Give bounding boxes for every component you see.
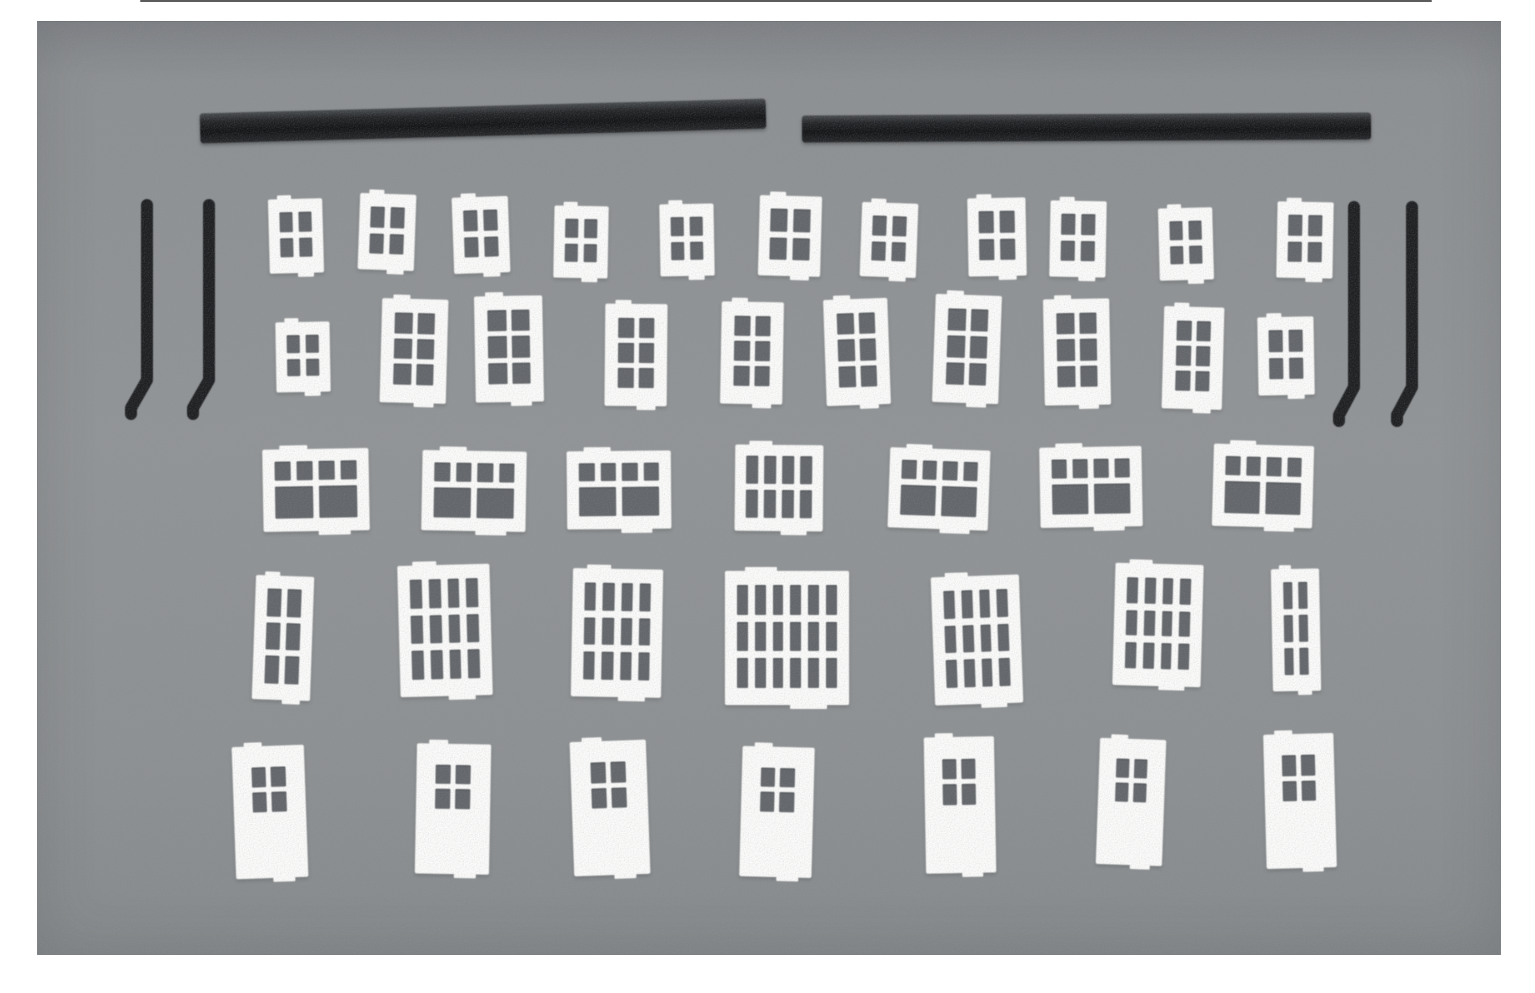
window-panes	[733, 316, 770, 387]
window-pane	[860, 365, 877, 387]
window-pane	[455, 789, 470, 809]
window-pane	[611, 762, 627, 783]
window-pane	[618, 318, 634, 338]
window-pane	[369, 233, 384, 254]
window-pane	[639, 583, 651, 611]
window-pane	[837, 313, 854, 335]
window-pane	[602, 617, 614, 645]
window-pane	[755, 658, 766, 688]
tall6-window-piece	[932, 294, 1002, 404]
window-panes	[1224, 456, 1301, 515]
window-panes	[434, 462, 515, 518]
window-pane	[1170, 246, 1183, 265]
window-pane	[1288, 215, 1302, 236]
door-window-panes	[251, 767, 286, 813]
window-pane	[998, 624, 1010, 652]
window-pane	[838, 339, 855, 361]
window-pane	[963, 659, 975, 687]
window-pane	[584, 582, 596, 610]
window-pane	[746, 456, 758, 484]
window-panes	[279, 212, 312, 258]
window-pane	[447, 579, 459, 608]
downspout-strip	[1397, 207, 1412, 421]
door-window-panes	[590, 762, 627, 809]
window-pane	[483, 209, 498, 230]
tall6-window-piece	[1043, 298, 1111, 405]
window-pane	[251, 767, 266, 787]
tall6-window-piece	[605, 304, 668, 407]
window-pane	[737, 585, 748, 615]
window-pane	[1289, 330, 1303, 352]
window-pane	[429, 615, 441, 644]
window-pane	[779, 792, 794, 812]
window-pane	[770, 208, 788, 231]
window-pane	[601, 652, 613, 680]
window-pane	[428, 579, 440, 608]
window-pane	[1180, 579, 1191, 605]
window-pane	[512, 362, 531, 384]
window-panes	[369, 206, 405, 254]
window-panes	[900, 460, 978, 518]
window-pane	[1287, 458, 1302, 478]
window-panes	[1125, 577, 1191, 670]
window-pane	[1116, 759, 1130, 778]
door-piece	[570, 740, 651, 877]
window-pane	[901, 460, 916, 479]
downspout-strip	[1339, 207, 1354, 421]
tall6-window-piece	[720, 301, 784, 404]
door-piece	[924, 736, 996, 873]
door-piece	[1096, 738, 1166, 866]
window-pane	[734, 316, 750, 336]
window-pane	[394, 312, 412, 333]
window-pane	[488, 336, 507, 358]
door-window-panes	[760, 767, 795, 812]
window-pane	[275, 486, 314, 518]
window-pane	[690, 217, 703, 236]
window-pane	[1079, 339, 1097, 361]
window-pane	[579, 487, 616, 516]
window-pane	[287, 335, 300, 353]
window-pane	[487, 310, 506, 332]
window-pane	[962, 625, 974, 653]
window-pane	[1061, 214, 1075, 235]
window-pane	[1266, 457, 1281, 477]
window-pane	[591, 788, 607, 809]
window-pane	[942, 759, 956, 780]
window-pane	[1269, 358, 1283, 380]
tall6-window-piece	[474, 295, 544, 402]
window-pane	[434, 462, 450, 481]
window-pane	[252, 792, 267, 812]
window-pane	[981, 659, 993, 687]
window-pane	[790, 585, 801, 615]
window-pane	[467, 614, 479, 643]
window-pane	[1143, 643, 1154, 669]
grid2x3-window-piece	[1271, 569, 1321, 692]
window-pane	[1144, 578, 1155, 604]
door-piece	[232, 745, 309, 879]
window-pane	[393, 364, 411, 385]
window-pane	[267, 588, 282, 616]
window-pane	[943, 784, 957, 805]
window-pane	[737, 658, 748, 688]
window-pane	[477, 463, 493, 482]
window-pane	[622, 463, 638, 481]
window-pane	[773, 658, 784, 688]
window-pane	[410, 580, 422, 609]
window-panes	[618, 318, 655, 388]
small4-window-piece	[275, 322, 330, 393]
window-pane	[620, 618, 632, 646]
window-pane	[943, 591, 955, 619]
window-pane	[1178, 644, 1189, 670]
window-pane	[755, 316, 771, 336]
window-panes	[769, 208, 810, 260]
window-pane	[979, 211, 994, 233]
window-pane	[1224, 481, 1260, 514]
window-panes	[1288, 215, 1323, 263]
window-pane	[299, 237, 313, 257]
window-pane	[511, 336, 530, 358]
window-pane	[370, 206, 385, 227]
window-pane	[1179, 611, 1190, 637]
window-pane	[892, 216, 907, 236]
window-pane	[412, 651, 424, 680]
transom-window-piece	[567, 451, 672, 530]
window-pane	[1052, 484, 1089, 515]
window-pane	[603, 583, 615, 611]
transom-window-piece	[421, 450, 526, 532]
window-pane	[671, 242, 684, 261]
window-pane	[435, 789, 450, 809]
window-pane	[872, 215, 887, 235]
small4-window-piece	[1158, 207, 1214, 280]
window-pane	[734, 341, 750, 361]
window-pane	[1299, 615, 1308, 642]
window-pane	[1079, 313, 1097, 335]
window-pane	[760, 767, 775, 787]
window-pane	[464, 237, 479, 258]
window-pane	[639, 318, 655, 338]
window-pane	[764, 490, 776, 518]
window-pane	[754, 366, 770, 386]
window-pane	[271, 791, 286, 811]
window-pane	[1176, 321, 1191, 341]
grid6x3-window-piece	[725, 571, 849, 705]
window-pane	[1298, 582, 1307, 609]
window-pane	[1302, 780, 1316, 801]
window-panes	[579, 463, 659, 517]
window-pane	[584, 244, 597, 263]
window-pane	[773, 585, 784, 615]
window-panes	[583, 582, 651, 680]
window-pane	[600, 463, 616, 481]
window-panes	[946, 308, 989, 385]
window-pane	[941, 486, 977, 518]
window-pane	[922, 460, 937, 479]
window-pane	[499, 463, 515, 482]
window-pane	[1308, 242, 1322, 263]
window-pane	[1195, 346, 1210, 366]
window-pane	[769, 237, 787, 260]
tall6-window-piece	[1162, 306, 1225, 410]
window-pane	[858, 312, 875, 334]
window-panes	[737, 585, 837, 688]
window-pane	[979, 590, 991, 618]
window-pane	[782, 490, 794, 518]
window-pane	[948, 308, 966, 331]
window-pane	[737, 622, 748, 652]
window-pane	[389, 234, 404, 255]
window-pane	[969, 336, 987, 359]
window-pane	[808, 622, 819, 652]
window-pane	[638, 653, 650, 681]
small4-window-piece	[1257, 317, 1314, 396]
window-pane	[430, 650, 442, 679]
grid2x3-window-piece	[252, 575, 314, 701]
window-pane	[790, 622, 801, 652]
downspout-strip	[193, 205, 209, 414]
transom-window-piece	[262, 448, 369, 532]
window-pane	[484, 236, 499, 257]
window-pane	[1133, 783, 1147, 802]
door-piece	[1263, 733, 1336, 869]
window-pane	[621, 583, 633, 611]
window-panes	[410, 578, 481, 680]
window-pane	[565, 243, 578, 262]
window-pane	[826, 658, 837, 688]
window-panes	[1175, 321, 1211, 392]
small4-window-piece	[452, 196, 511, 274]
small4-window-piece	[659, 204, 714, 277]
window-pane	[1308, 215, 1322, 236]
window-pane	[871, 241, 886, 261]
door-window-panes	[435, 764, 471, 809]
window-pane	[800, 456, 812, 484]
window-pane	[826, 622, 837, 652]
window-panes	[1052, 458, 1131, 514]
window-panes	[871, 215, 907, 261]
window-pane	[436, 764, 451, 784]
window-pane	[1000, 238, 1015, 260]
window-pane	[999, 658, 1011, 686]
window-pane	[318, 461, 334, 481]
window-pane	[944, 625, 956, 653]
window-panes	[1269, 330, 1304, 380]
window-pane	[900, 484, 936, 516]
window-pane	[1125, 642, 1136, 668]
window-pane	[456, 463, 472, 482]
window-pane	[622, 487, 659, 516]
window-pane	[477, 488, 515, 519]
window-pane	[583, 652, 595, 680]
window-pane	[891, 242, 906, 262]
window-pane	[733, 366, 749, 386]
window-pane	[643, 463, 659, 481]
small4-window-piece	[268, 198, 324, 273]
window-pane	[1301, 755, 1315, 776]
window-pane	[1057, 339, 1075, 361]
window-pane	[790, 658, 801, 688]
grid4x3-window-piece	[571, 568, 663, 698]
window-pane	[1269, 330, 1283, 352]
window-pane	[1143, 610, 1154, 636]
window-pane	[1127, 577, 1138, 603]
small4-window-piece	[860, 202, 919, 278]
window-pane	[838, 366, 855, 388]
window-pane	[590, 763, 606, 784]
window-pane	[826, 585, 837, 615]
window-pane	[1000, 211, 1015, 233]
window-pane	[1061, 240, 1075, 261]
window-panes	[264, 588, 301, 684]
window-panes	[746, 456, 813, 519]
window-pane	[1282, 756, 1296, 777]
window-pane	[961, 590, 973, 618]
window-panes	[487, 310, 530, 385]
window-pane	[961, 758, 975, 779]
window-pane	[584, 219, 597, 238]
grid4x3-window-piece	[1112, 563, 1203, 687]
window-pane	[416, 364, 434, 385]
window-pane	[618, 368, 634, 388]
window-pane	[746, 490, 758, 518]
window-pane	[808, 585, 819, 615]
window-pane	[996, 589, 1008, 617]
window-pane	[1056, 313, 1074, 335]
window-pane	[808, 658, 819, 688]
window-panes	[463, 209, 499, 257]
window-pane	[287, 359, 300, 377]
window-pane	[468, 649, 480, 678]
window-pane	[1188, 221, 1201, 240]
door-window-panes	[1115, 759, 1147, 803]
window-pane	[754, 341, 770, 361]
window-pane	[755, 622, 766, 652]
window-pane	[1052, 459, 1067, 478]
window-pane	[1284, 615, 1293, 642]
small4-window-piece	[553, 206, 608, 279]
grid4x3-window-piece	[931, 575, 1023, 706]
window-pane	[764, 456, 776, 484]
window-panes	[287, 335, 320, 377]
window-pane	[284, 656, 299, 684]
window-pane	[946, 660, 958, 688]
window-pane	[611, 787, 627, 808]
door-window-panes	[942, 758, 976, 805]
window-pane	[793, 209, 811, 232]
window-panes	[979, 211, 1016, 261]
window-pane	[1189, 245, 1202, 264]
window-pane	[1195, 371, 1210, 391]
window-pane	[1080, 365, 1098, 387]
tall6-window-piece	[823, 298, 891, 406]
window-pane	[639, 618, 651, 646]
window-pane	[390, 207, 405, 228]
transom-window-piece	[1039, 446, 1142, 528]
small4-window-piece	[967, 197, 1026, 276]
window-pane	[1225, 456, 1240, 476]
window-pane	[1115, 783, 1129, 802]
window-panes	[565, 219, 598, 263]
window-pane	[448, 614, 460, 643]
window-pane	[1094, 483, 1131, 514]
window-pane	[306, 335, 319, 353]
window-pane	[760, 792, 775, 812]
window-pane	[1175, 371, 1190, 391]
window-pane	[859, 339, 876, 361]
window-panes	[1056, 313, 1097, 388]
window-pane	[1289, 357, 1303, 379]
window-pane	[340, 460, 356, 480]
window-panes	[837, 312, 878, 387]
window-pane	[286, 623, 301, 651]
window-pane	[1094, 459, 1109, 478]
window-pane	[411, 615, 423, 644]
window-pane	[449, 650, 461, 679]
window-pane	[416, 339, 434, 360]
door-piece	[415, 743, 491, 874]
door-window-panes	[1282, 755, 1316, 801]
window-pane	[963, 462, 978, 481]
window-pane	[1176, 346, 1191, 366]
window-pane	[620, 652, 632, 680]
downspout-strip	[131, 205, 147, 414]
window-pane	[1161, 611, 1172, 637]
window-pane	[1284, 648, 1293, 675]
slat8-window-piece	[735, 445, 824, 532]
window-pane	[980, 624, 992, 652]
window-pane	[780, 768, 795, 788]
window-pane	[275, 461, 291, 481]
window-pane	[1288, 241, 1302, 262]
window-pane	[1081, 241, 1095, 262]
window-pane	[1169, 221, 1182, 240]
window-panes	[1061, 214, 1096, 262]
window-pane	[1073, 459, 1088, 478]
tall6-window-piece	[380, 298, 449, 404]
window-pane	[264, 656, 279, 684]
window-pane	[394, 338, 412, 359]
window-pane	[962, 784, 976, 805]
window-pane	[947, 335, 965, 358]
window-panes	[671, 217, 704, 261]
window-pane	[690, 241, 703, 260]
window-pane	[1283, 582, 1292, 609]
window-panes	[1283, 582, 1309, 675]
transom-window-piece	[888, 447, 991, 530]
window-pane	[466, 578, 478, 607]
window-pane	[942, 461, 957, 480]
gutter-strip	[802, 113, 1371, 143]
window-pane	[800, 490, 812, 518]
window-pane	[638, 368, 654, 388]
window-pane	[271, 767, 286, 787]
window-pane	[565, 219, 578, 238]
small4-window-piece	[1276, 202, 1333, 279]
gutter-strip	[200, 99, 767, 144]
window-pane	[792, 238, 810, 261]
window-pane	[1115, 458, 1130, 477]
window-pane	[279, 212, 293, 232]
window-pane	[298, 212, 312, 232]
window-pane	[1196, 321, 1211, 341]
window-pane	[946, 362, 964, 385]
window-pane	[511, 310, 530, 332]
window-pane	[979, 239, 994, 261]
small4-window-piece	[358, 193, 417, 271]
